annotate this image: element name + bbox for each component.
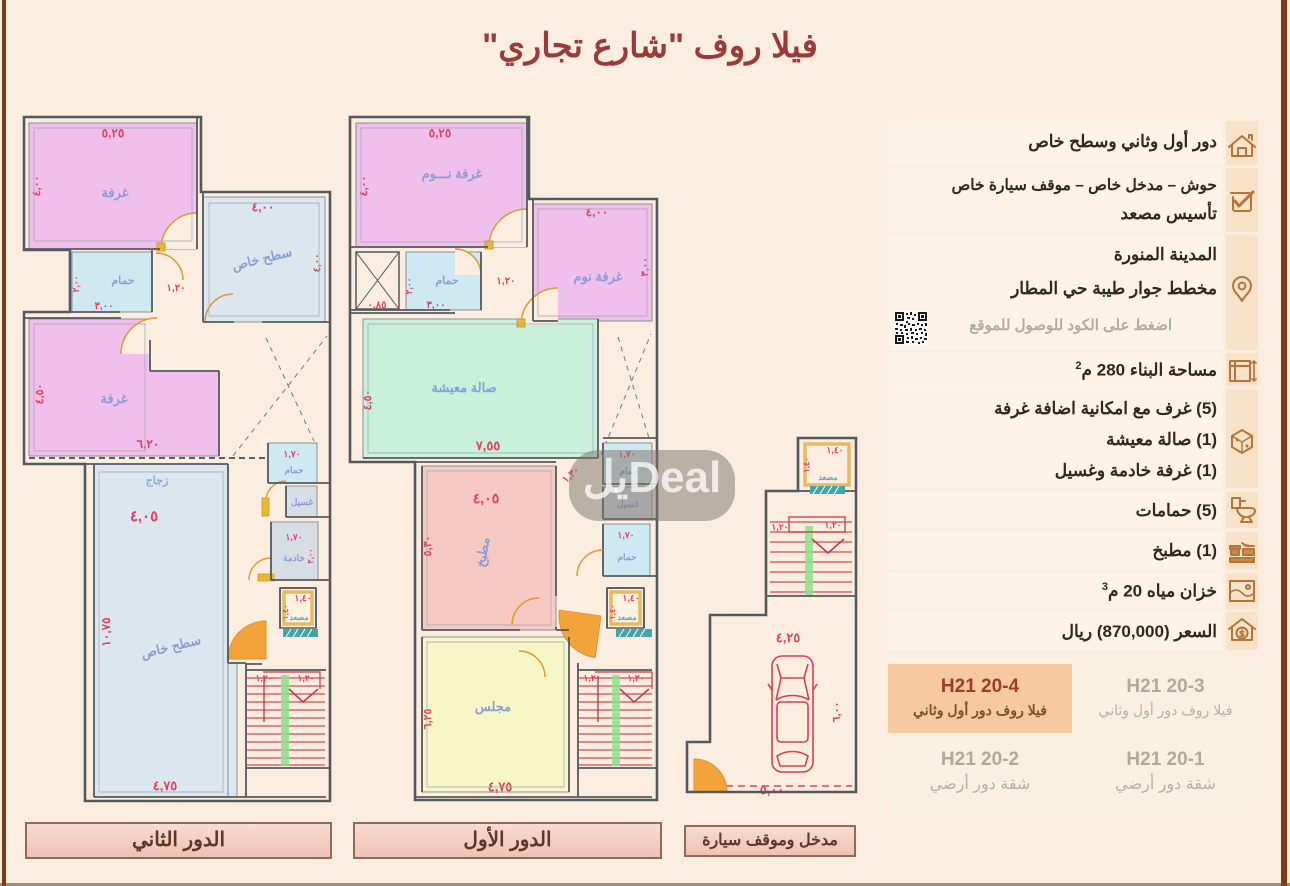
svg-text:١,٧٠: ١,٧٠ xyxy=(283,449,300,459)
svg-text:خادمة: خادمة xyxy=(283,553,305,563)
svg-text:١,٢٠: ١,٢٠ xyxy=(583,673,600,683)
svg-text:١٠,٧٥: ١٠,٧٥ xyxy=(99,617,113,646)
svg-text:٤,٠٠: ٤,٠٠ xyxy=(252,200,275,214)
svg-text:٢,٠٠: ٢,٠٠ xyxy=(306,548,315,563)
svg-text:مصعد: مصعد xyxy=(617,613,636,622)
svg-text:٢,٠٠: ٢,٠٠ xyxy=(71,275,81,292)
svg-text:١,٧٠: ١,٧٠ xyxy=(285,532,302,542)
svg-text:١,٤٠: ١,٤٠ xyxy=(802,457,811,472)
svg-text:٣,٠٠: ٣,٠٠ xyxy=(640,258,651,277)
svg-text:حمام: حمام xyxy=(617,552,637,563)
svg-text:غرفة نـــوم: غرفة نـــوم xyxy=(422,166,483,182)
svg-text:٦,٢٠: ٦,٢٠ xyxy=(137,437,160,451)
svg-text:زجاج: زجاج xyxy=(146,475,169,487)
svg-text:٧,٥٥: ٧,٥٥ xyxy=(475,438,501,453)
svg-text:غسيل: غسيل xyxy=(291,497,314,507)
svg-text:١,٤٠: ١,٤٠ xyxy=(608,604,617,619)
svg-text:٤,٠٥: ٤,٠٥ xyxy=(130,508,158,525)
svg-text:٦,٢٥: ٦,٢٥ xyxy=(422,709,434,730)
svg-text:مصعد: مصعد xyxy=(289,613,308,622)
svg-text:٤,٠٥: ٤,٠٥ xyxy=(473,490,499,506)
svg-text:١,٢٠: ١,٢٠ xyxy=(497,276,516,287)
svg-text:حمام: حمام xyxy=(284,465,304,476)
svg-text:٦,٠٠: ٦,٠٠ xyxy=(831,702,843,723)
svg-text:٤,٠٠: ٤,٠٠ xyxy=(31,176,43,197)
svg-text:٤,٢٥: ٤,٢٥ xyxy=(776,630,801,645)
svg-text:حمام: حمام xyxy=(435,275,459,287)
svg-text:٤,٧٥: ٤,٧٥ xyxy=(153,778,178,793)
svg-text:١,٢٠: ١,٢٠ xyxy=(297,673,314,683)
svg-text:٣,٠٠: ٣,٠٠ xyxy=(95,301,114,312)
svg-text:٤,٥٠: ٤,٥٠ xyxy=(34,384,46,405)
svg-text:١,٢٠: ١,٢٠ xyxy=(255,673,272,683)
svg-text:حمام: حمام xyxy=(111,275,135,287)
svg-text:٥,٠٠: ٥,٠٠ xyxy=(760,782,785,797)
svg-text:١,٤٠: ١,٤٠ xyxy=(826,445,843,455)
svg-text:٥,٣٠: ٥,٣٠ xyxy=(422,536,434,557)
svg-text:١,٢٠: ١,٢٠ xyxy=(167,283,186,294)
svg-text:٤,٧٥: ٤,٧٥ xyxy=(488,779,513,794)
svg-text:غرفة نوم: غرفة نوم xyxy=(573,269,622,285)
svg-text:١,٤٠: ١,٤٠ xyxy=(294,593,311,603)
svg-text:١,٢٠: ١,٢٠ xyxy=(824,520,841,530)
svg-text:صالة معيشة: صالة معيشة xyxy=(431,380,496,395)
svg-text:٤,٠٠: ٤,٠٠ xyxy=(586,205,609,219)
svg-text:١,٢٠: ١,٢٠ xyxy=(771,522,788,532)
svg-text:١,٤٠: ١,٤٠ xyxy=(622,593,639,603)
svg-text:غرفة: غرفة xyxy=(101,185,128,201)
svg-text:مصعد: مصعد xyxy=(818,473,837,482)
svg-text:١,٢٠: ١,٢٠ xyxy=(627,673,644,683)
svg-text:١,٧٠: ١,٧٠ xyxy=(617,530,634,540)
svg-text:٤,٠٠: ٤,٠٠ xyxy=(358,176,370,197)
svg-text:٢,٠٠: ٢,٠٠ xyxy=(404,277,414,294)
svg-text:٤,٠٠: ٤,٠٠ xyxy=(312,254,323,273)
svg-text:غرفة: غرفة xyxy=(100,391,127,407)
svg-text:مجلس: مجلس xyxy=(475,699,511,715)
